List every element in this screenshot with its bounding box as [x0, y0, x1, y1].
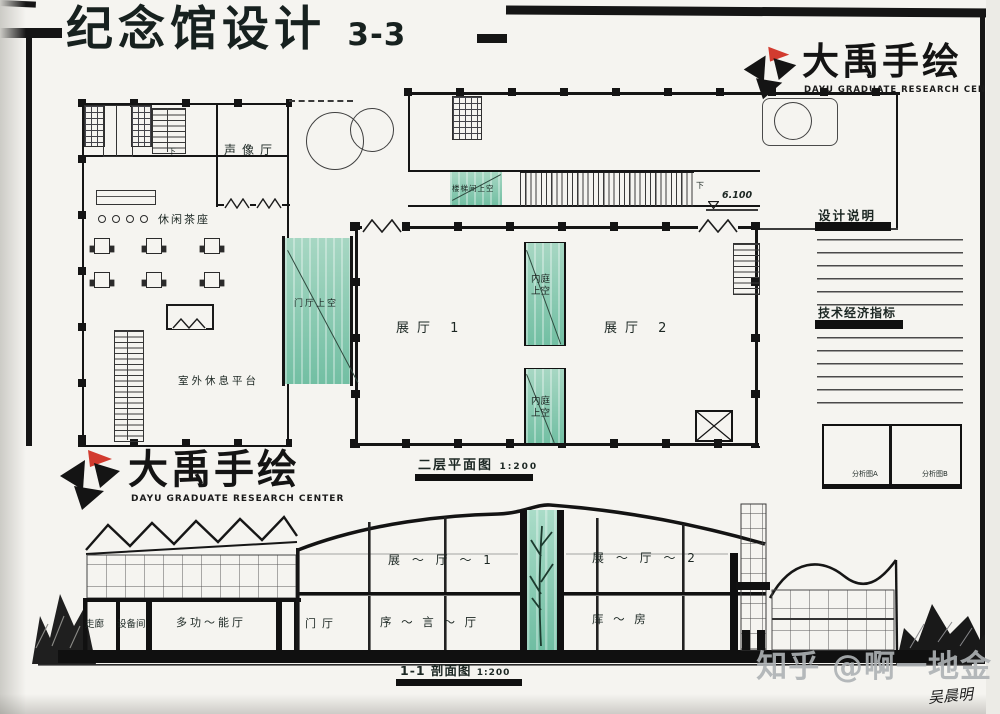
notes-rules-2 [817, 337, 963, 415]
dayu-logo-name: 大禹手绘 [802, 42, 962, 83]
border-left [26, 28, 32, 446]
door-swing-icon [362, 219, 402, 233]
table-symbol [204, 238, 220, 254]
page-title-suffix: 3-3 [347, 17, 406, 53]
door-swing-icon [172, 318, 206, 329]
tree-icon [350, 108, 394, 152]
room-label-entry-void: 门厅上空 [294, 300, 338, 310]
tech-index-heading: 技术经济指标 [818, 307, 896, 320]
wing-columns-top [404, 88, 900, 96]
watermark: 知乎 @啊一地金 [700, 650, 992, 684]
plan-caption-bar [415, 474, 533, 481]
page-title-text: 纪念馆设计 [66, 2, 326, 57]
wing-wall-left [408, 92, 410, 172]
room-label-exhibit-1: 展厅 1 [396, 322, 466, 336]
wc-hatch-a [84, 105, 105, 147]
plan-caption-text: 二层平面图 [418, 458, 493, 473]
section-caption: 1-1 剖面图 1:200 [400, 664, 510, 679]
scan-shadow-left [0, 0, 26, 714]
table-symbol [94, 238, 110, 254]
section-label-foyer: 门厅 [305, 618, 339, 630]
section-label-hall2: 展 ～ 厅 ～ 2 [592, 552, 699, 565]
design-notes-highlight [815, 222, 891, 231]
section-label-corridor: 走廊 [85, 620, 104, 630]
section-drawing [30, 498, 985, 670]
elevator-icon [695, 410, 733, 442]
stair-left [114, 330, 144, 442]
stair-right [733, 243, 760, 295]
plan-columns-bottom [78, 439, 292, 447]
dayu-logo-name: 大禹手绘 [128, 448, 300, 492]
dashed-line [289, 100, 353, 102]
stool [126, 215, 134, 223]
design-notes-heading: 设计说明 [818, 209, 876, 223]
void-wall-right [350, 236, 353, 386]
level-mark: 6.100 [722, 191, 752, 201]
room-label-audio-hall: 声像厅 [224, 144, 278, 157]
section-caption-bar [396, 679, 522, 686]
plan-caption: 二层平面图 1:200 [418, 459, 538, 473]
tree-icon [774, 102, 812, 140]
presentation-board: 纪念馆设计 3-3 大禹手绘 DAYU GRADUATE RESEARCH CE… [0, 0, 1000, 714]
plan-caption-scale: 1:200 [500, 462, 539, 472]
stool [112, 215, 120, 223]
table-symbol [94, 272, 110, 288]
down-mark-1: 下 [168, 148, 176, 157]
shaft-hatch [452, 96, 482, 140]
room-label-court-void-1: 内庭上空 [531, 274, 553, 298]
section-label-storage: 库 ～ 房 [592, 613, 649, 626]
audio-hall-wall-left [216, 103, 218, 207]
border-top [506, 5, 998, 17]
stool [140, 215, 148, 223]
analysis-box-divider [889, 424, 892, 484]
level-marker-icon [708, 201, 719, 209]
room-label-court-void-2: 内庭上空 [531, 396, 553, 420]
stair-long [520, 172, 694, 207]
page-title: 纪念馆设计 3-3 [66, 4, 406, 56]
plan-columns-left [78, 99, 86, 449]
table-symbol [146, 272, 162, 288]
section-label-equipment: 设备间 [117, 620, 146, 630]
title-dash-right [477, 34, 507, 43]
stair-top-rail [167, 108, 168, 152]
room-label-exhibit-2: 展厅 2 [604, 322, 674, 336]
counter [96, 190, 156, 205]
scan-shadow-right [986, 0, 1000, 714]
down-mark-2: 下 [696, 182, 704, 191]
scan-shadow-bottom [0, 694, 1000, 714]
door-swing-icon [256, 198, 282, 209]
wc-stalls [103, 105, 133, 157]
section-caption-scale: 1:200 [477, 668, 511, 678]
door-swing-icon [698, 219, 738, 233]
wing-wall-right [896, 92, 898, 230]
room-label-stair-void: 楼梯间上空 [452, 185, 495, 193]
stair-left-rail [127, 330, 128, 440]
room-label-outdoor-platform: 室外休息平台 [178, 376, 259, 388]
section-label-multi-hall: 多功～能厅 [176, 617, 246, 629]
analysis-box [822, 424, 962, 489]
room-label-tea-lounge: 休闲茶座 [158, 214, 210, 226]
tech-index-highlight [815, 320, 903, 329]
signature: 吴晨明 [927, 686, 973, 706]
entry-void-green [285, 238, 350, 384]
wc-hatch-b [131, 105, 152, 147]
section-label-preface: 序 ～ 言 ～ 厅 [380, 616, 479, 629]
analysis-box-a-label: 分析图A [852, 471, 878, 479]
stool [98, 215, 106, 223]
table-symbol [146, 238, 162, 254]
section-label-hall1: 展 ～ 厅 ～ 1 [388, 554, 495, 567]
door-swing-icon [224, 198, 250, 209]
table-symbol [204, 272, 220, 288]
level-underline [706, 209, 758, 211]
section-caption-text: 1-1 剖面图 [400, 663, 471, 678]
analysis-box-b-label: 分析图B [922, 471, 948, 479]
